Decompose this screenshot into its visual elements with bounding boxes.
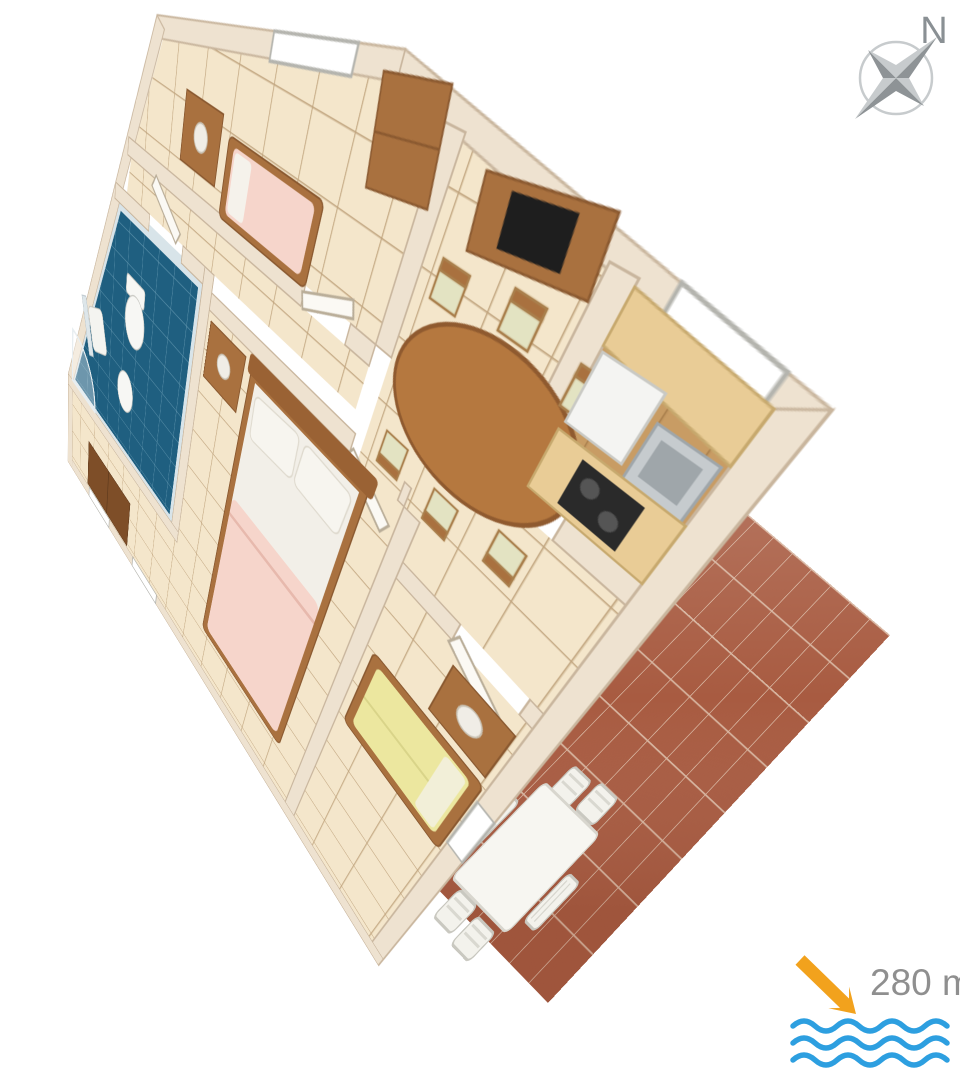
distance-text: 280 m (870, 962, 960, 1004)
distance-to-sea-badge: 280 m (782, 948, 960, 1074)
compass-north-label: N (908, 10, 960, 53)
sea-waves-icon (788, 1016, 958, 1072)
floor-plan-page: N 280 m (0, 0, 960, 1078)
distance-arrow-icon (790, 952, 868, 1022)
